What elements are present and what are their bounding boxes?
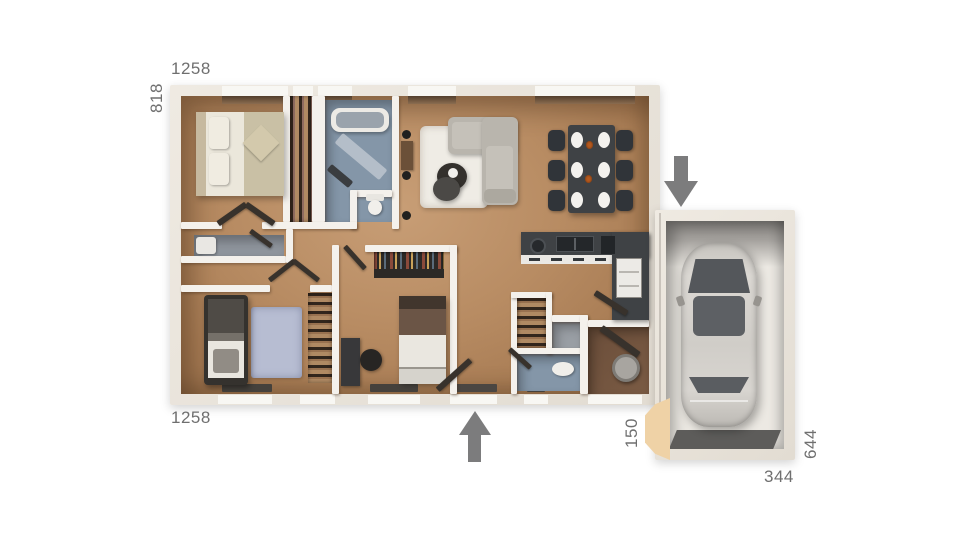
pillow: [209, 117, 229, 149]
dining-chair: [548, 190, 565, 211]
cabinet-handle: [595, 258, 606, 261]
car: [681, 243, 757, 427]
bathtub: [331, 108, 389, 132]
pillow: [209, 153, 229, 185]
dimension-garage-offset: 150: [622, 418, 642, 448]
dining-chair: [616, 190, 633, 211]
bed-headboard: [196, 112, 206, 196]
vanity-sink: [196, 237, 216, 254]
coffee-table: [433, 177, 460, 201]
hall-closet: [517, 298, 546, 348]
plate: [598, 162, 610, 178]
cooktop: [530, 238, 546, 254]
window: [318, 86, 352, 96]
garage-entry-arrow-down-icon: [664, 156, 698, 208]
stove: [601, 236, 615, 254]
plate: [598, 192, 610, 208]
bed-duvet: [399, 335, 446, 367]
window: [368, 395, 420, 404]
bed-headboard: [399, 296, 446, 309]
plate: [571, 162, 583, 178]
bed-band: [208, 333, 244, 341]
wall: [365, 245, 457, 252]
window-lintel: [535, 96, 635, 104]
entry-door-opening: [450, 395, 497, 404]
kitchen-sink: [556, 236, 594, 252]
dining-chair: [616, 160, 633, 181]
wall: [392, 96, 399, 229]
car-sunroof: [693, 296, 745, 336]
bedroom2-rug: [251, 307, 302, 378]
toilet: [368, 200, 382, 215]
centerpiece: [586, 141, 593, 149]
wall: [511, 348, 587, 354]
dimension-garage-height: 644: [801, 429, 821, 459]
laundry-basket: [612, 354, 640, 382]
cabinet-handle: [573, 258, 584, 261]
bookshelf: [374, 252, 444, 278]
wall: [181, 285, 270, 292]
garage-apron: [669, 430, 781, 449]
dining-chair: [616, 130, 633, 151]
wall: [181, 256, 286, 263]
bathroom-sink: [552, 362, 574, 376]
plate: [571, 132, 583, 148]
window-sill: [370, 384, 418, 392]
bed-blanket: [213, 349, 239, 373]
master-closet: [290, 96, 312, 222]
window: [535, 86, 635, 96]
wall: [580, 315, 588, 394]
bed-headrest: [208, 299, 244, 333]
arrow-head: [664, 181, 698, 207]
wall: [283, 96, 290, 222]
dining-chair: [548, 160, 565, 181]
wall-seam: [659, 213, 661, 403]
window: [293, 86, 313, 96]
arrow-stem: [674, 156, 688, 181]
sink-divider: [574, 238, 576, 250]
wall: [332, 245, 339, 394]
floor-plan-canvas: 1258 818 1258 150 644 344: [0, 0, 960, 540]
bed-blanket: [399, 309, 446, 335]
wall: [262, 222, 357, 229]
wall: [588, 320, 649, 327]
arrow-stem: [468, 435, 481, 462]
master-bed: [196, 112, 284, 196]
car-rear-window: [689, 377, 749, 393]
fridge-line: [619, 271, 639, 273]
car-windshield: [688, 259, 750, 293]
speaker: [402, 211, 411, 220]
teapot: [448, 168, 458, 178]
desk: [341, 338, 360, 386]
side-wall-block: [645, 398, 670, 460]
car-trunk-line: [690, 400, 748, 402]
fridge-line: [619, 285, 639, 287]
cabinet-handle: [529, 258, 540, 261]
tv-cabinet: [401, 141, 413, 170]
window: [408, 86, 456, 96]
bedroom3-bed: [399, 296, 446, 382]
dimension-house-width-bottom: 1258: [171, 408, 211, 428]
window: [218, 395, 272, 404]
dimension-garage-width: 344: [764, 467, 794, 487]
entry-doormat: [450, 384, 497, 392]
bed-footboard: [399, 367, 446, 384]
arrow-head: [459, 411, 491, 435]
cabinet-handle: [551, 258, 562, 261]
plate: [598, 132, 610, 148]
wall: [546, 292, 552, 354]
main-entry-arrow-up-icon: [459, 411, 491, 462]
window-sill: [222, 384, 272, 392]
wall: [312, 96, 325, 222]
bedroom2-closet: [308, 293, 332, 383]
bedroom2-bed: [204, 295, 248, 385]
window-lintel: [408, 96, 456, 104]
plate: [571, 192, 583, 208]
fridge: [616, 258, 642, 298]
dimension-house-width-top: 1258: [171, 59, 211, 79]
sofa-main: [482, 117, 518, 205]
centerpiece: [585, 175, 592, 183]
wall: [511, 292, 517, 394]
wall: [181, 222, 222, 229]
window: [222, 86, 288, 96]
speaker: [402, 171, 411, 180]
dining-chair: [548, 130, 565, 151]
dimension-house-height-left: 818: [147, 83, 167, 113]
sofa-armrest: [484, 189, 516, 203]
speaker: [402, 130, 411, 139]
window-lintel: [222, 96, 288, 104]
window: [588, 395, 642, 404]
window: [300, 395, 335, 404]
desk-chair: [360, 349, 382, 371]
wall: [310, 285, 332, 292]
bathtub-basin: [336, 112, 384, 128]
window: [524, 395, 548, 404]
